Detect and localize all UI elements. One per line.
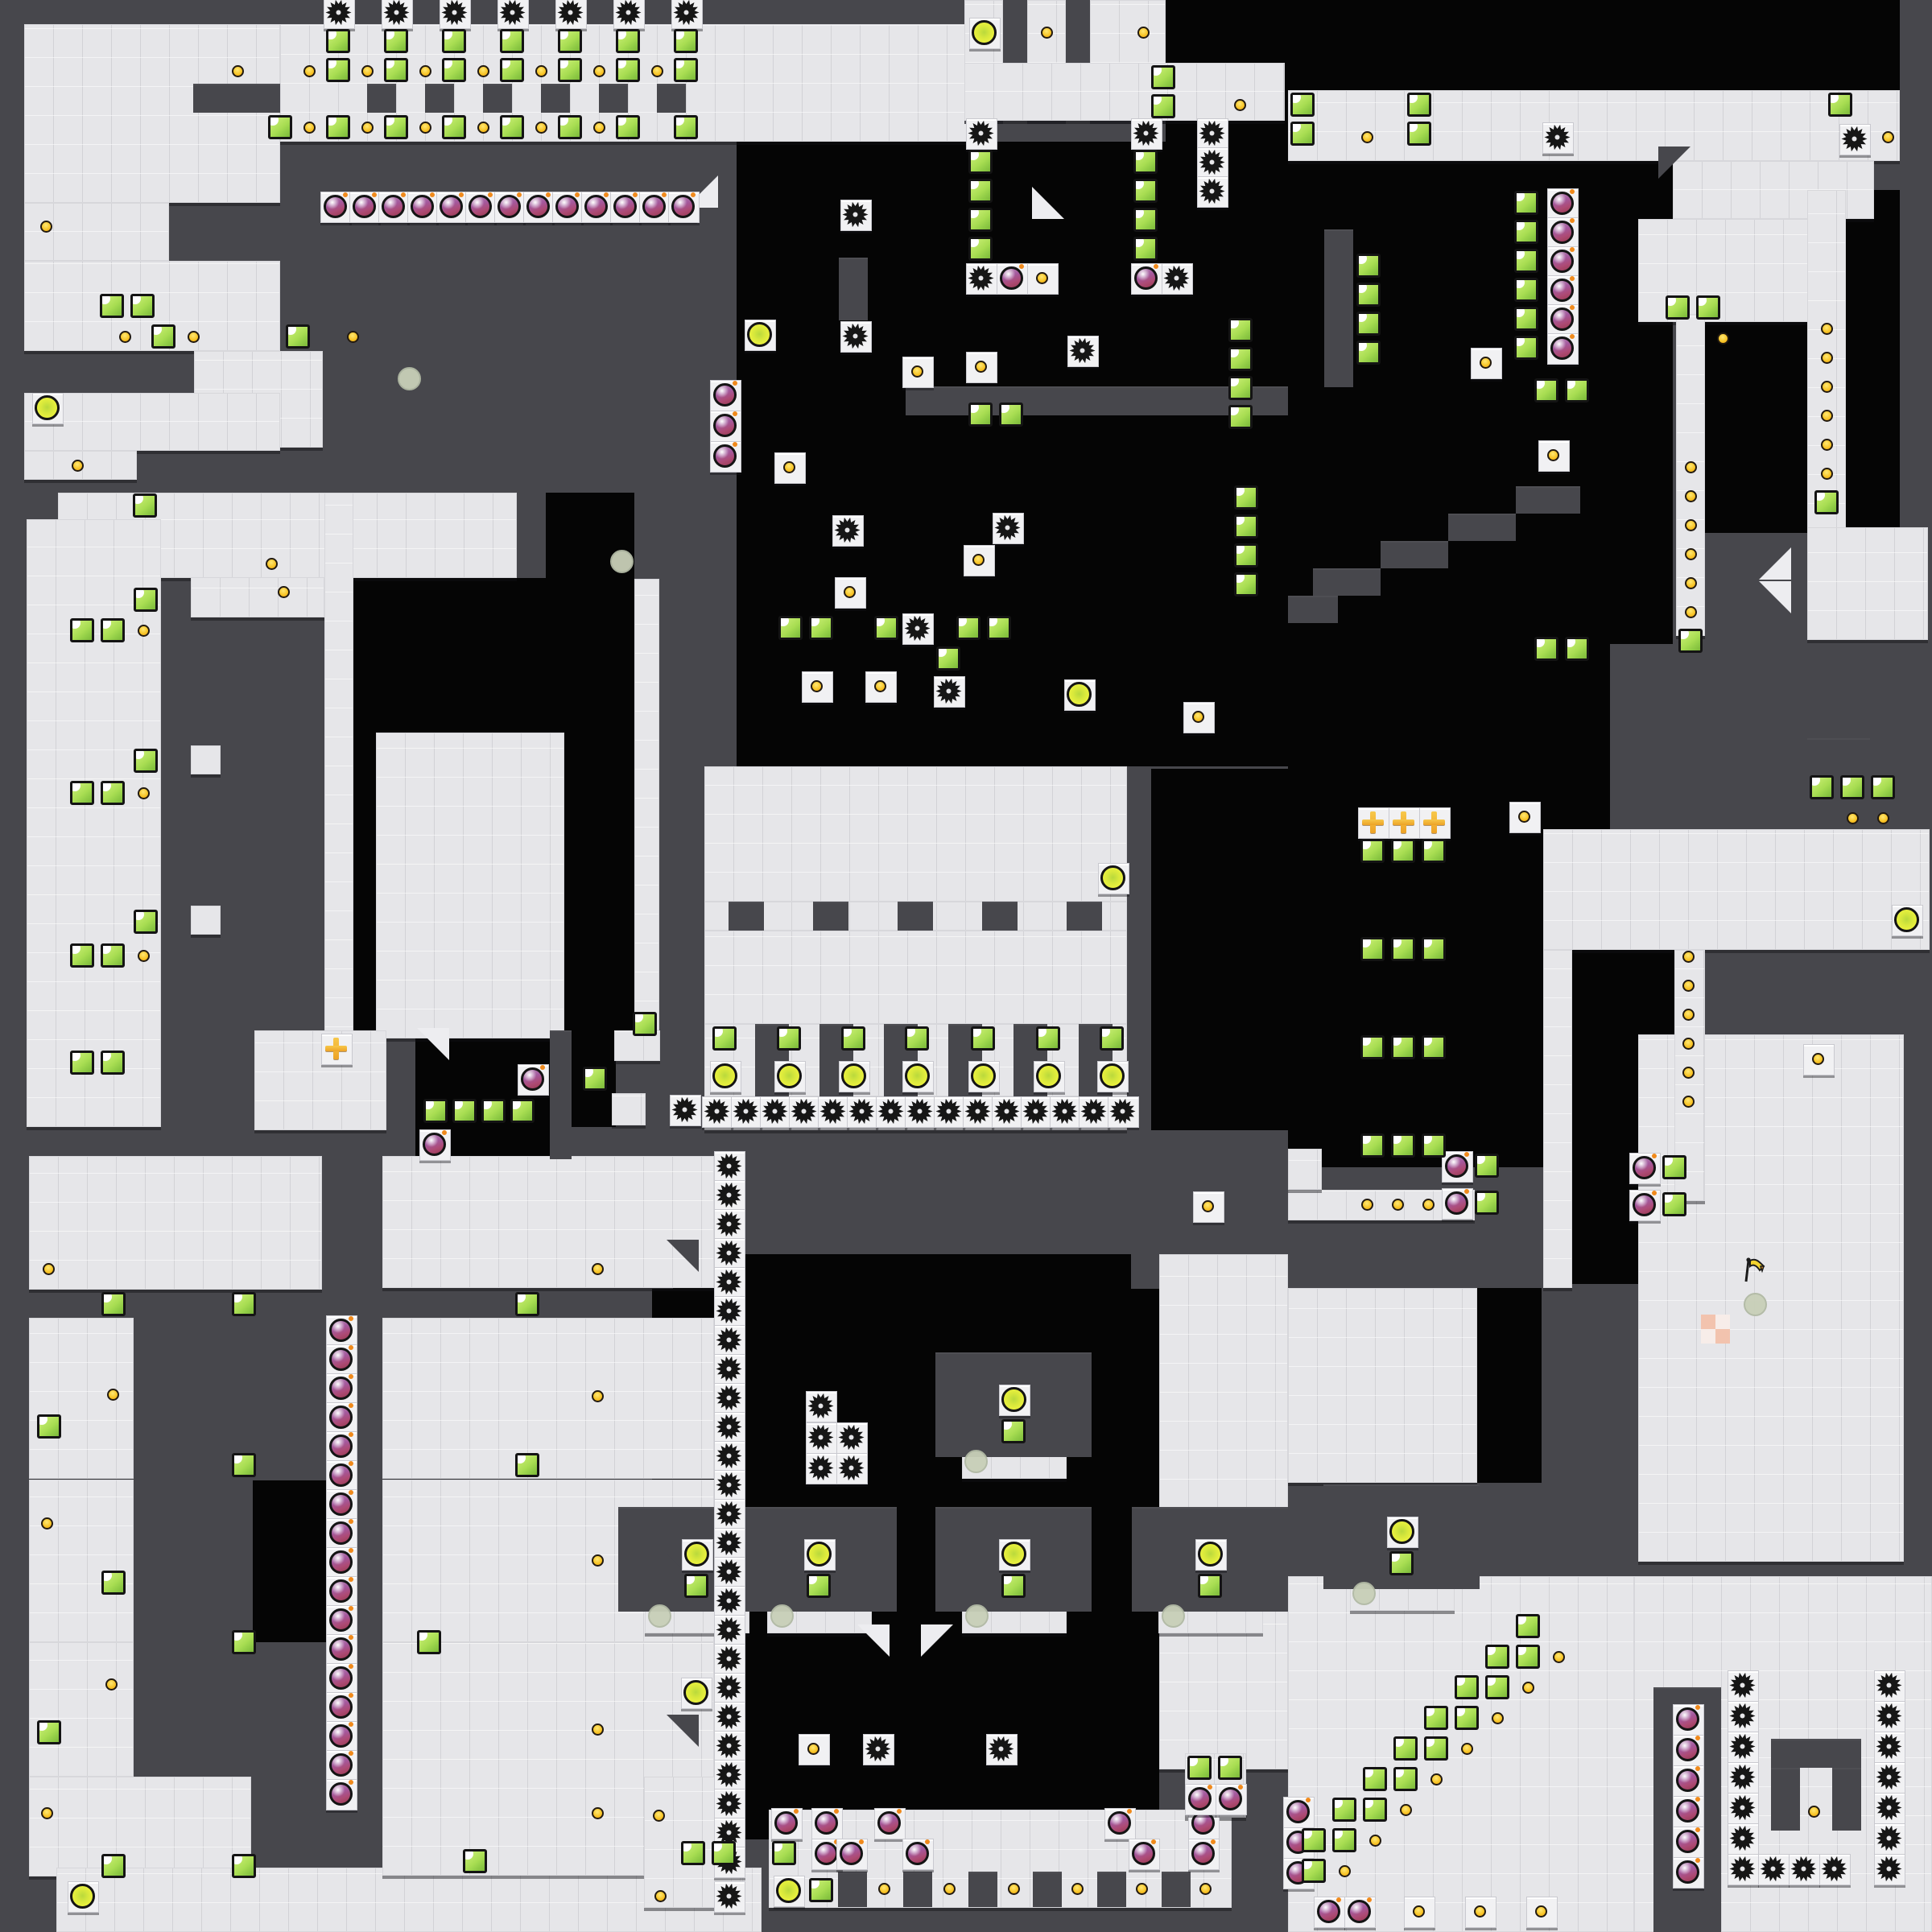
bomb-icon xyxy=(329,1782,353,1806)
green-block xyxy=(616,29,640,53)
green-block xyxy=(1360,1133,1385,1158)
bomb-icon xyxy=(1188,1787,1212,1810)
green-block xyxy=(500,58,524,82)
wall-block xyxy=(1448,514,1516,541)
green-block xyxy=(999,402,1023,427)
saw-icon xyxy=(716,1703,742,1730)
floor-area xyxy=(191,906,221,935)
bomb-icon xyxy=(329,1319,353,1342)
wall-block xyxy=(483,84,512,113)
big-coin xyxy=(841,1063,866,1088)
coin xyxy=(1682,951,1695,963)
coin xyxy=(1882,131,1894,143)
saw-icon xyxy=(615,0,642,26)
green-block xyxy=(481,1099,506,1123)
green-block xyxy=(500,29,524,53)
saw-icon xyxy=(935,1098,962,1125)
big-coin xyxy=(712,1063,737,1088)
green-block xyxy=(515,1292,539,1316)
bomb-icon xyxy=(774,1811,798,1835)
green-block xyxy=(70,1051,94,1075)
wall-block xyxy=(1097,1872,1126,1907)
bomb-icon xyxy=(1676,1738,1699,1761)
saw-icon xyxy=(762,1098,788,1125)
bomb-icon xyxy=(329,1695,353,1719)
saw-icon xyxy=(1199,149,1225,175)
saw-icon xyxy=(716,1529,742,1556)
floor-area xyxy=(324,493,353,1056)
green-block xyxy=(633,1012,657,1036)
black-pit xyxy=(1477,1288,1542,1483)
green-block xyxy=(1228,376,1253,400)
saw-icon xyxy=(1876,1764,1902,1790)
saw-icon xyxy=(716,1269,742,1295)
green-block xyxy=(268,115,292,139)
bomb-icon xyxy=(1219,1787,1242,1810)
wall-block xyxy=(1324,229,1353,387)
green-block xyxy=(1455,1706,1479,1730)
saw-icon xyxy=(1199,120,1225,147)
green-block xyxy=(1485,1645,1509,1669)
big-coin xyxy=(684,1542,709,1567)
big-coin xyxy=(905,1063,930,1088)
floor-area xyxy=(1543,829,1930,950)
saw-icon xyxy=(716,1385,742,1411)
coin xyxy=(1685,548,1697,560)
ramp-white xyxy=(857,1624,890,1657)
coin xyxy=(1685,577,1697,589)
saw-icon xyxy=(1199,178,1225,204)
green-block xyxy=(1516,1645,1540,1669)
bomb-icon xyxy=(1550,250,1574,273)
green-block xyxy=(712,1026,737,1051)
pale-cell xyxy=(1701,1329,1715,1344)
saw-icon xyxy=(716,1732,742,1759)
green-block xyxy=(968,237,993,261)
green-block xyxy=(151,324,175,349)
green-block xyxy=(1290,93,1315,117)
coin xyxy=(1474,1905,1486,1918)
saw-icon xyxy=(1069,337,1096,364)
coin xyxy=(1192,711,1204,723)
coin xyxy=(1682,1009,1695,1021)
green-block xyxy=(326,115,350,139)
green-block xyxy=(1514,191,1538,215)
coin xyxy=(1682,980,1695,992)
green-block xyxy=(1332,1828,1356,1852)
green-block xyxy=(1516,1614,1540,1638)
floor-area xyxy=(1543,950,1572,1288)
coin xyxy=(592,1724,604,1736)
green-block xyxy=(1678,629,1703,653)
saw-icon xyxy=(807,1424,834,1451)
bomb-icon xyxy=(329,1637,353,1661)
coin xyxy=(266,558,278,570)
coin xyxy=(1682,1096,1695,1108)
green-block xyxy=(1828,93,1852,117)
green-block xyxy=(1360,937,1385,961)
bomb-icon xyxy=(329,1579,353,1603)
saw-icon xyxy=(557,0,584,26)
coin xyxy=(105,1678,118,1690)
saw-icon xyxy=(904,615,931,642)
bomb-icon xyxy=(329,1435,353,1458)
saw-icon xyxy=(834,517,861,543)
ghost-circle xyxy=(1744,1293,1767,1316)
wall-block xyxy=(982,902,1018,931)
coin xyxy=(41,1807,53,1819)
coin xyxy=(303,65,316,77)
cross-icon xyxy=(1393,811,1414,833)
black-pit xyxy=(353,519,376,1030)
saw-icon xyxy=(1876,1856,1902,1882)
saw-icon xyxy=(968,265,994,291)
saw-icon xyxy=(842,323,869,349)
big-coin xyxy=(683,1680,708,1705)
green-block xyxy=(101,1854,126,1878)
green-block xyxy=(1662,1192,1686,1216)
green-block xyxy=(1393,1736,1418,1761)
green-block xyxy=(1100,1026,1124,1051)
green-block xyxy=(101,781,125,805)
green-block xyxy=(101,618,125,642)
bomb-icon xyxy=(329,1463,353,1487)
bomb-icon xyxy=(815,1842,838,1865)
bomb-icon xyxy=(1550,308,1574,331)
black-pit xyxy=(1288,0,1900,90)
floor-area xyxy=(634,579,659,1030)
coin xyxy=(1422,1199,1435,1211)
green-block xyxy=(558,58,582,82)
green-block xyxy=(1696,295,1720,320)
green-block xyxy=(987,616,1011,640)
green-block xyxy=(1356,312,1381,336)
wall-block xyxy=(1516,486,1580,514)
coin xyxy=(347,331,359,343)
saw-icon xyxy=(807,1455,834,1481)
saw-icon xyxy=(906,1098,933,1125)
coin xyxy=(1392,1199,1404,1211)
green-block xyxy=(232,1453,256,1477)
big-coin xyxy=(777,1063,802,1088)
bomb-icon xyxy=(1000,266,1023,290)
green-block xyxy=(1391,1035,1415,1059)
bomb-icon xyxy=(469,195,492,218)
big-coin xyxy=(1067,682,1092,707)
big-coin xyxy=(1001,1542,1026,1567)
saw-icon xyxy=(325,0,352,26)
coin xyxy=(654,1890,667,1902)
green-block xyxy=(1662,1155,1686,1179)
saw-icon xyxy=(848,1098,875,1125)
bomb-icon xyxy=(1348,1900,1371,1923)
bomb-icon xyxy=(440,195,463,218)
wall-block xyxy=(599,84,628,113)
bomb-icon xyxy=(1676,1830,1699,1853)
bomb-icon xyxy=(1445,1191,1468,1215)
coin xyxy=(40,221,52,233)
bomb-icon xyxy=(584,195,608,218)
coin xyxy=(592,1807,604,1819)
green-block xyxy=(1228,405,1253,429)
coin xyxy=(419,65,431,77)
green-block xyxy=(674,58,698,82)
green-block xyxy=(1001,1419,1026,1443)
big-coin xyxy=(747,322,772,347)
big-coin xyxy=(1389,1519,1414,1544)
saw-icon xyxy=(441,0,468,26)
green-block xyxy=(956,616,980,640)
saw-icon xyxy=(807,1393,834,1419)
wall-block xyxy=(1771,1739,1861,1768)
saw-icon xyxy=(1163,265,1190,291)
green-block xyxy=(558,115,582,139)
bomb-icon xyxy=(1132,1842,1155,1865)
big-coin xyxy=(972,20,997,45)
green-block xyxy=(417,1630,441,1654)
green-block xyxy=(1391,937,1415,961)
green-block xyxy=(1422,1035,1446,1059)
green-block xyxy=(130,294,155,318)
green-block xyxy=(968,150,993,174)
coin xyxy=(1553,1651,1565,1663)
big-coin xyxy=(776,1878,801,1903)
wall-block xyxy=(657,84,686,113)
big-coin xyxy=(971,1063,996,1088)
coin xyxy=(278,586,290,598)
green-block xyxy=(384,29,408,53)
green-block xyxy=(583,1067,607,1091)
saw-icon xyxy=(1876,1733,1902,1760)
saw-icon xyxy=(716,1587,742,1614)
black-pit xyxy=(1846,190,1900,528)
green-block xyxy=(326,58,350,82)
saw-icon xyxy=(842,201,869,228)
big-coin xyxy=(1100,865,1125,890)
bomb-icon xyxy=(840,1842,863,1865)
wall-block xyxy=(425,84,454,113)
green-block xyxy=(1234,485,1258,510)
black-pit xyxy=(1151,769,1288,1130)
green-block xyxy=(1840,775,1864,799)
coin xyxy=(811,680,823,692)
green-block xyxy=(70,781,94,805)
wall-block xyxy=(1771,1768,1800,1831)
bomb-icon xyxy=(1550,221,1574,244)
black-pit xyxy=(737,142,1167,496)
green-block xyxy=(968,208,993,232)
green-block xyxy=(968,179,993,203)
coin xyxy=(1522,1682,1534,1694)
green-block xyxy=(1234,543,1258,568)
cross-icon xyxy=(325,1038,347,1059)
coin xyxy=(1430,1773,1443,1785)
big-coin xyxy=(1894,907,1919,932)
coin xyxy=(1361,1199,1373,1211)
saw-icon xyxy=(994,514,1021,541)
coin xyxy=(1535,1905,1547,1918)
green-block xyxy=(616,58,640,82)
green-block xyxy=(1422,839,1446,863)
coin xyxy=(1369,1835,1381,1847)
green-block xyxy=(1666,295,1690,320)
green-block xyxy=(1302,1828,1326,1852)
green-block xyxy=(384,115,408,139)
coin xyxy=(43,1263,55,1275)
pale-cell xyxy=(1715,1315,1730,1329)
saw-icon xyxy=(968,120,994,147)
green-block xyxy=(807,1574,831,1598)
ramp-white xyxy=(417,1028,449,1060)
level-board[interactable] xyxy=(0,0,1932,1932)
coin xyxy=(107,1389,119,1401)
saw-icon xyxy=(1729,1825,1756,1851)
wall-block xyxy=(367,84,396,113)
green-block xyxy=(134,588,158,612)
coin xyxy=(1685,461,1697,473)
floor-area xyxy=(1288,1149,1322,1190)
coin xyxy=(535,65,547,77)
saw-icon xyxy=(716,1443,742,1469)
saw-icon xyxy=(733,1098,759,1125)
pink-cell xyxy=(1715,1329,1730,1344)
green-block xyxy=(1302,1859,1326,1883)
saw-icon xyxy=(1022,1098,1049,1125)
saw-icon xyxy=(704,1098,730,1125)
bomb-icon xyxy=(906,1842,929,1865)
saw-icon xyxy=(716,1674,742,1701)
coin xyxy=(593,122,605,134)
saw-icon xyxy=(673,0,700,26)
floor-area xyxy=(612,1093,646,1125)
ramp-dark xyxy=(667,1715,699,1747)
green-block xyxy=(1565,637,1589,661)
green-block xyxy=(384,58,408,82)
green-block xyxy=(133,493,157,518)
saw-icon xyxy=(865,1736,891,1762)
saw-icon xyxy=(1841,126,1868,152)
green-block xyxy=(1534,637,1558,661)
green-block xyxy=(232,1854,256,1878)
green-block xyxy=(1151,94,1175,118)
coin xyxy=(1547,449,1559,461)
green-block xyxy=(100,294,124,318)
saw-icon xyxy=(716,1472,742,1498)
saw-icon xyxy=(1051,1098,1078,1125)
floor-area xyxy=(29,1777,251,1876)
coin xyxy=(1518,811,1530,823)
coin xyxy=(1400,1804,1412,1816)
saw-icon xyxy=(877,1098,904,1125)
coin xyxy=(1071,1883,1084,1895)
saw-icon xyxy=(1544,124,1571,151)
bomb-icon xyxy=(1550,192,1574,215)
coin xyxy=(1041,27,1053,39)
coin xyxy=(1685,490,1697,502)
green-block xyxy=(37,1414,61,1439)
bomb-icon xyxy=(329,1348,353,1371)
saw-icon xyxy=(964,1098,991,1125)
bomb-icon xyxy=(329,1377,353,1400)
green-block xyxy=(1133,208,1158,232)
bomb-icon xyxy=(613,195,637,218)
ghost-circle xyxy=(770,1604,794,1628)
coin xyxy=(874,680,886,692)
green-block xyxy=(1360,839,1385,863)
saw-icon xyxy=(716,1501,742,1527)
coin xyxy=(1821,439,1833,451)
floor-area xyxy=(382,1318,714,1479)
coin xyxy=(361,65,374,77)
green-block xyxy=(1133,237,1158,261)
green-block xyxy=(452,1099,477,1123)
wall-block xyxy=(1067,902,1102,931)
coin xyxy=(592,1390,604,1402)
green-block xyxy=(712,1841,736,1865)
green-block xyxy=(1514,220,1538,244)
green-block xyxy=(70,943,94,968)
saw-icon xyxy=(1729,1764,1756,1790)
floor-area xyxy=(191,577,324,617)
green-block xyxy=(1389,1551,1414,1575)
bomb-icon xyxy=(671,195,695,218)
coin xyxy=(477,65,489,77)
wall-block xyxy=(898,902,933,931)
ghost-circle xyxy=(610,550,634,573)
saw-icon xyxy=(1133,120,1159,147)
wall-block xyxy=(541,84,570,113)
wall-block xyxy=(1381,541,1448,568)
green-block xyxy=(1514,278,1538,302)
coin xyxy=(138,950,150,962)
floor-area xyxy=(704,766,1127,902)
green-block xyxy=(1218,1756,1242,1780)
wall-block xyxy=(1832,1768,1861,1831)
green-block xyxy=(1228,347,1253,371)
saw-icon xyxy=(716,1153,742,1179)
green-block xyxy=(1814,490,1839,514)
bomb-icon xyxy=(329,1666,353,1690)
wall-block xyxy=(550,1030,572,1159)
saw-icon xyxy=(716,1558,742,1585)
coin xyxy=(1202,1200,1214,1212)
floor-area xyxy=(1288,1288,1477,1483)
coin xyxy=(303,122,316,134)
bomb-icon xyxy=(815,1811,838,1835)
green-block xyxy=(905,1026,929,1051)
green-block xyxy=(1234,514,1258,539)
green-block xyxy=(1234,572,1258,597)
wall-block xyxy=(193,84,280,113)
green-block xyxy=(684,1574,708,1598)
saw-icon xyxy=(716,1211,742,1237)
bomb-icon xyxy=(411,195,434,218)
floor-area xyxy=(29,1480,134,1642)
ramp-white xyxy=(1032,187,1064,219)
green-block xyxy=(1514,336,1538,360)
coin xyxy=(1339,1865,1351,1877)
coin xyxy=(1136,1883,1148,1895)
big-coin xyxy=(1036,1063,1061,1088)
bomb-icon xyxy=(329,1521,353,1545)
saw-icon xyxy=(1821,1856,1847,1882)
saw-icon xyxy=(1729,1703,1756,1729)
saw-icon xyxy=(993,1098,1020,1125)
coin xyxy=(1008,1883,1020,1895)
floor-area xyxy=(29,1156,322,1290)
big-coin xyxy=(1001,1387,1026,1412)
bomb-icon xyxy=(324,195,347,218)
